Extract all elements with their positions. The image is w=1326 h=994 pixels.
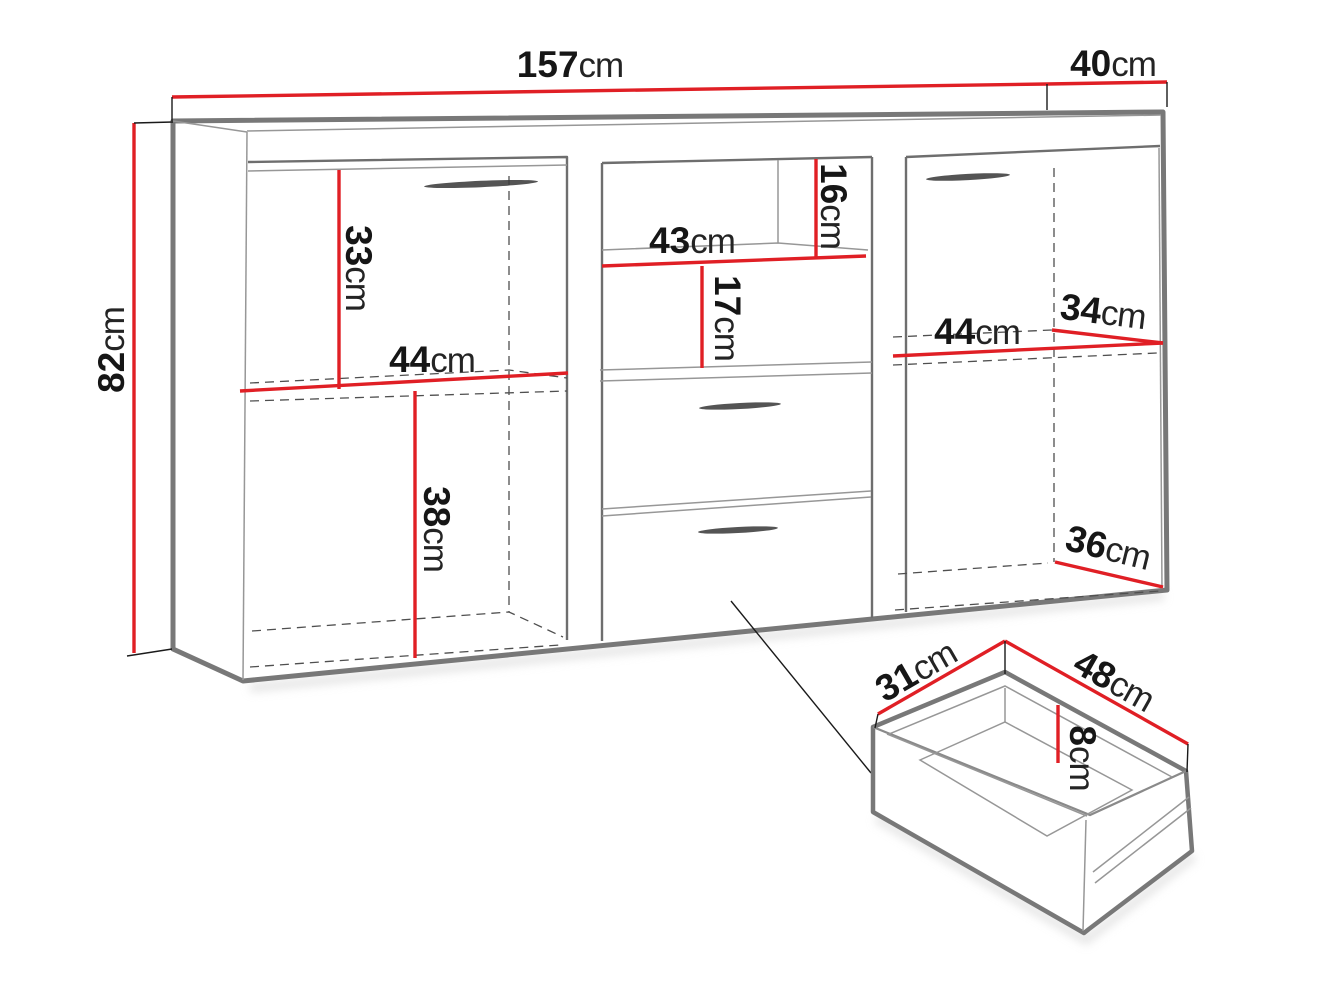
dim-label-drawer-inner-height: 8cm — [1062, 725, 1103, 790]
dim-label-middle-shelf-gap: 17cm — [707, 275, 748, 361]
dim-label-left-width: 44cm — [389, 339, 475, 380]
dim-label-cabinet-height: 82cm — [91, 307, 132, 393]
dim-label-left-lower-height: 38cm — [416, 486, 457, 572]
dim-label-drawer-width: 48cm — [1067, 642, 1162, 720]
dim-label-right-width: 44cm — [934, 311, 1020, 352]
furniture-dimension-diagram: 157cm 40cm 82cm 33cm 44cm 38cm 43cm 16cm… — [0, 0, 1326, 994]
dim-label-middle-top-gap: 16cm — [813, 163, 854, 249]
diagram-canvas: 157cm 40cm 82cm 33cm 44cm 38cm 43cm 16cm… — [0, 0, 1326, 994]
dim-label-cabinet-depth: 40cm — [1070, 43, 1156, 84]
dim-line-cabinet-width — [172, 84, 1047, 97]
dim-label-middle-shelf-width: 43cm — [649, 220, 735, 261]
tick-height-top — [134, 122, 173, 123]
cabinet-drawing — [173, 112, 1167, 681]
dim-label-cabinet-width: 157cm — [517, 44, 623, 85]
dim-label-left-upper-height: 33cm — [338, 225, 379, 311]
cabinet-outline — [173, 112, 1167, 681]
tick-drawer-right — [1187, 744, 1188, 772]
